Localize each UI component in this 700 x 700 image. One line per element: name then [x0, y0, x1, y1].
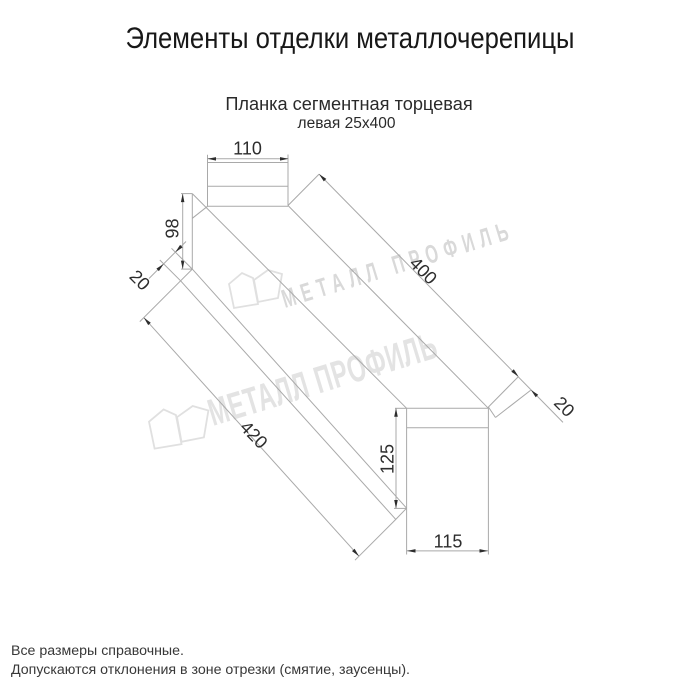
svg-text:110: 110	[233, 139, 262, 159]
svg-text:МЕТАЛЛ ПРОФИЛЬ: МЕТАЛЛ ПРОФИЛЬ	[278, 214, 518, 313]
svg-text:98: 98	[163, 218, 183, 238]
svg-text:20: 20	[126, 266, 154, 294]
svg-text:125: 125	[378, 444, 398, 474]
svg-text:115: 115	[434, 531, 463, 551]
svg-text:20: 20	[550, 393, 578, 421]
